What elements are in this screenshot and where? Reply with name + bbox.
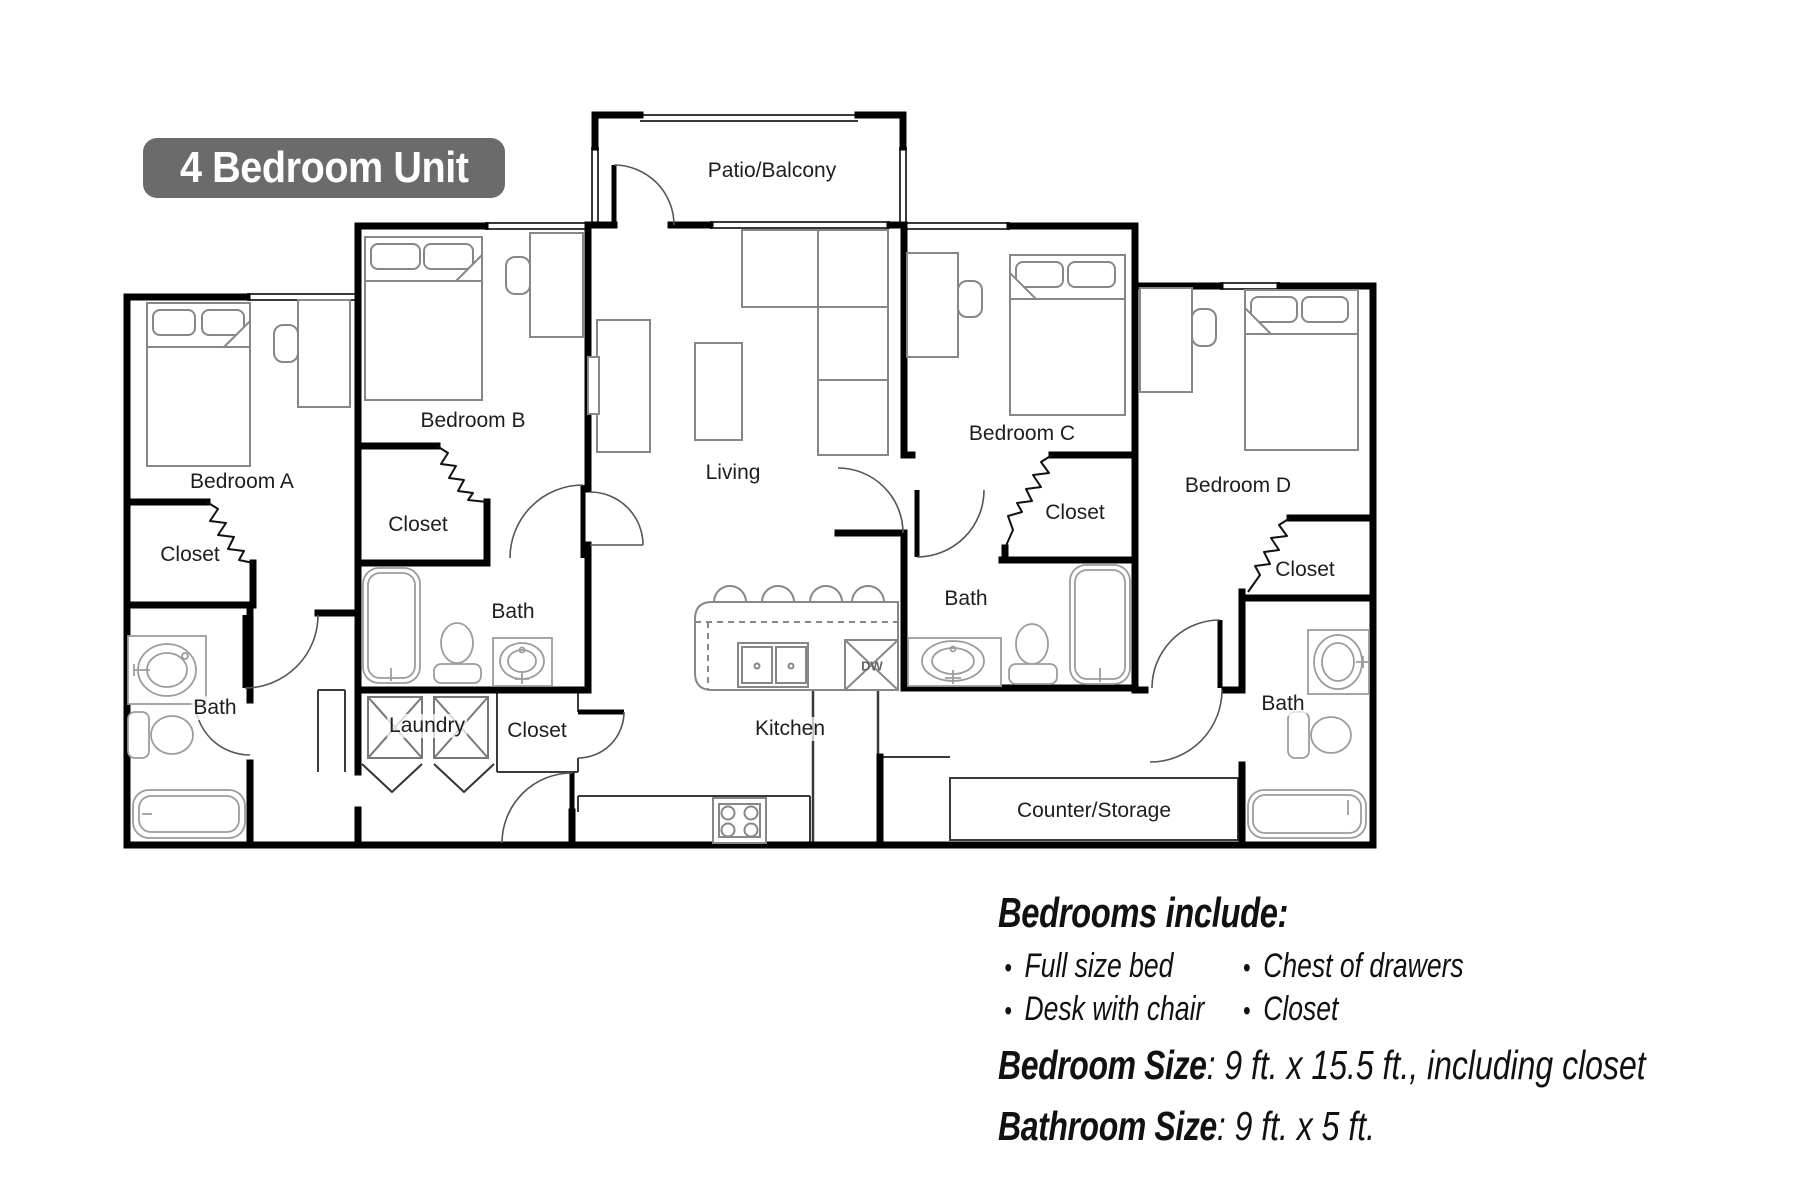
bullet-item: Full size bed [998, 945, 1237, 988]
details-heading: Bedrooms include: [998, 891, 1762, 935]
page: 4 Bedroom Unit Patio/Balcony Living Kitc… [0, 0, 1800, 1200]
room-label-bedroom-d: Bedroom D [1183, 474, 1293, 498]
bath-c-fixtures [908, 565, 1130, 686]
room-label-closet-c: Closet [1043, 501, 1107, 525]
bath-d-fixtures [1248, 630, 1369, 838]
room-label-bedroom-c: Bedroom C [967, 422, 1077, 446]
bathroom-size-label: Bathroom Size [998, 1103, 1217, 1149]
bullet-column-1: Full size bed Desk with chair [998, 945, 1237, 1031]
plan-title: 4 Bedroom Unit [143, 138, 505, 198]
room-label-patio: Patio/Balcony [706, 159, 838, 183]
plan-title-text: 4 Bedroom Unit [180, 143, 469, 193]
room-label-closet-b: Closet [386, 513, 450, 537]
bedroom-size-value: : 9 ft. x 15.5 ft., including closet [1207, 1042, 1646, 1088]
bed-d [1245, 290, 1358, 450]
desk-a [274, 300, 350, 407]
room-label-laundry: Laundry [387, 714, 467, 738]
bath-a-fixtures [128, 636, 245, 838]
desk-d [1140, 288, 1216, 392]
room-label-closet-d: Closet [1273, 558, 1337, 582]
room-label-bedroom-b: Bedroom B [418, 409, 527, 433]
details-block: Bedrooms include: Full size bed Desk wit… [998, 891, 1762, 1149]
bed-a [147, 303, 250, 466]
details-bullets: Full size bed Desk with chair Chest of d… [998, 945, 1762, 1031]
bedroom-size-line: Bedroom Size: 9 ft. x 15.5 ft., includin… [998, 1042, 1762, 1088]
room-label-bath-c: Bath [942, 587, 989, 611]
coffee-table [695, 343, 742, 440]
dishwasher-label: DW [861, 659, 883, 674]
stove [713, 798, 766, 843]
room-label-kitchen: Kitchen [753, 717, 827, 741]
room-label-living: Living [704, 461, 763, 485]
room-label-bath-d: Bath [1259, 692, 1306, 716]
bed-b [365, 237, 482, 400]
room-label-closet-a: Closet [158, 543, 222, 567]
sectional-couch [742, 230, 888, 455]
room-label-bath-b: Bath [489, 600, 536, 624]
bullet-column-2: Chest of drawers Closet [1237, 945, 1565, 1031]
bedroom-size-label: Bedroom Size [998, 1042, 1207, 1088]
room-label-bedroom-a: Bedroom A [188, 470, 296, 494]
bullet-item: Chest of drawers [1237, 945, 1565, 988]
washer-dryer [362, 697, 494, 792]
room-label-closet-hall: Closet [505, 719, 569, 743]
media-console [588, 320, 650, 452]
bed-c [1010, 255, 1125, 415]
bullet-item: Closet [1237, 988, 1565, 1031]
bathroom-size-line: Bathroom Size: 9 ft. x 5 ft. [998, 1103, 1762, 1149]
bath-b-fixtures [363, 568, 552, 686]
bullet-item: Desk with chair [998, 988, 1237, 1031]
room-label-counter-storage: Counter/Storage [1015, 799, 1173, 823]
desk-c [907, 253, 982, 357]
desk-b [506, 233, 583, 337]
furniture [147, 230, 1358, 843]
room-label-bath-a: Bath [191, 696, 238, 720]
bathroom-size-value: : 9 ft. x 5 ft. [1217, 1103, 1375, 1149]
